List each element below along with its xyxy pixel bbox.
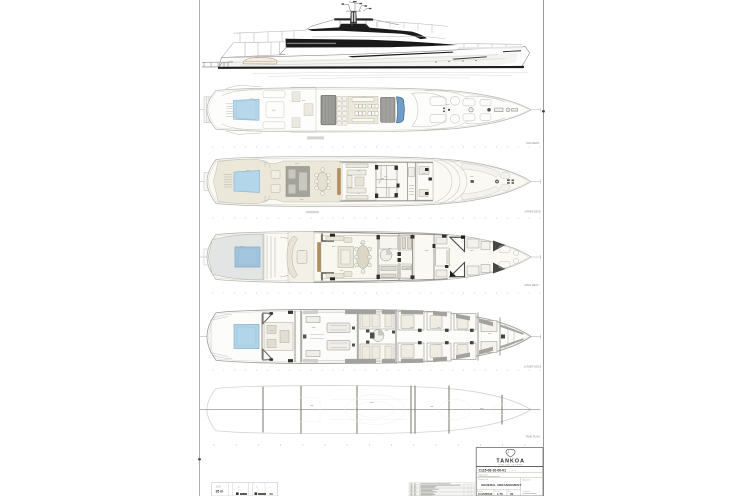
svg-text:Drawing Title: Drawing Title (478, 478, 488, 481)
svg-text:TANK PLAN: TANK PLAN (526, 435, 540, 439)
svg-text:1:75: 1:75 (497, 492, 503, 496)
svg-text:MAIN DECK: MAIN DECK (525, 283, 540, 287)
svg-text:C115-08-10-00-01: C115-08-10-00-01 (479, 468, 507, 472)
svg-text:LOA: LOA (216, 486, 221, 489)
svg-text:35 m: 35 m (216, 490, 224, 494)
svg-text:Approved: Approved (523, 479, 531, 482)
svg-text:Project Ref.: Project Ref. (478, 473, 488, 476)
svg-text:LOWER DECK: LOWER DECK (524, 365, 542, 369)
svg-text:SUN DECK: SUN DECK (526, 141, 540, 145)
svg-text:- - -: - - - (512, 469, 516, 472)
svg-text:Checked: Checked (523, 491, 530, 493)
svg-text:50: 50 (270, 492, 274, 496)
svg-text:UPPER DECK: UPPER DECK (525, 210, 542, 214)
svg-text:00: 00 (510, 492, 514, 496)
svg-text:C115/S533: C115/S533 (478, 492, 493, 496)
svg-text:GENERAL ARRANGEMENT: GENERAL ARRANGEMENT (481, 483, 521, 487)
